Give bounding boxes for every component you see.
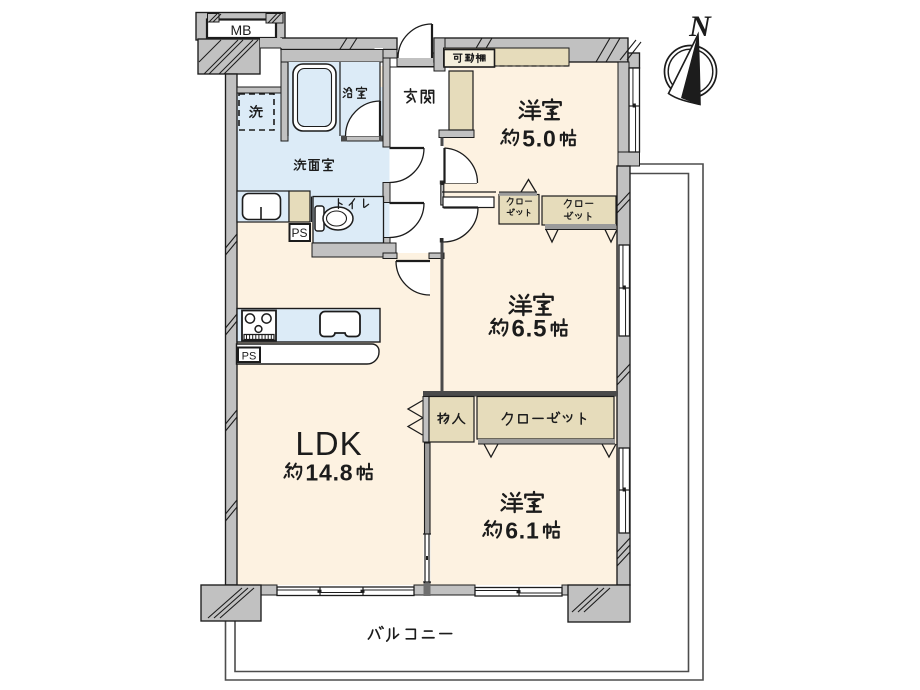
svg-text:MB: MB <box>231 22 252 38</box>
svg-text:14.8: 14.8 <box>305 459 353 485</box>
svg-text:5.0: 5.0 <box>522 125 556 151</box>
svg-text:6.5: 6.5 <box>512 316 548 343</box>
svg-text:PS: PS <box>291 226 307 240</box>
svg-text:N: N <box>688 10 712 43</box>
svg-text:6.1: 6.1 <box>505 517 539 543</box>
svg-text:PS: PS <box>242 351 257 363</box>
svg-text:LDK: LDK <box>295 425 362 462</box>
